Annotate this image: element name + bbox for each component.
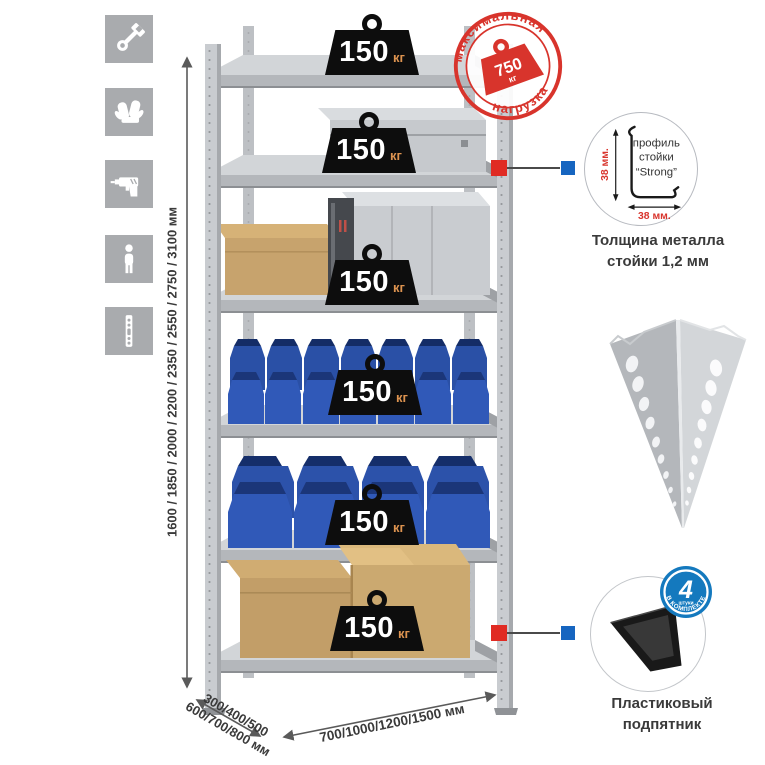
shelf-load-value: 150 xyxy=(344,612,394,645)
profile-detail-circle: 38 мм. 38 мм. профиль стойки “Strong” xyxy=(584,112,698,226)
weight-body: 150 кг xyxy=(322,128,416,173)
wrench-icon xyxy=(105,15,153,63)
shelf-load-badge: 150 кг xyxy=(330,590,424,651)
callout-marker-red-bottom xyxy=(491,625,507,641)
shelf-load-unit: кг xyxy=(393,520,405,535)
shelf-load-badge: 150 кг xyxy=(328,354,422,415)
profile-cross-section: 38 мм. 38 мм. профиль стойки “Strong” xyxy=(585,113,694,222)
max-load-stamp: максимальная нагрузка 750 кг xyxy=(450,8,566,124)
foot-caption-line1: Пластиковый xyxy=(572,694,752,715)
weight-body: 150 кг xyxy=(325,30,419,75)
profile-dim-horizontal: 38 мм. xyxy=(638,211,671,222)
person-icon xyxy=(105,235,153,283)
shelf-load-unit: кг xyxy=(393,50,405,65)
thickness-caption-line1: Толщина металла xyxy=(568,231,748,252)
profile-label-2: стойки xyxy=(639,152,674,164)
gloves-icon xyxy=(105,88,153,136)
profile-label-3: “Strong” xyxy=(636,166,677,178)
product-infographic: 150 кг 150 кг 150 кг 150 кг 150 кг xyxy=(0,0,765,765)
thickness-caption-line2: стойки 1,2 мм xyxy=(568,252,748,273)
callout-marker-red-top xyxy=(491,160,507,176)
shelf-load-value: 150 xyxy=(339,266,389,299)
drill-icon xyxy=(105,160,153,208)
shelf-load-badge: 150 кг xyxy=(325,244,419,305)
shelf-load-unit: кг xyxy=(396,390,408,405)
shelf-load-value: 150 xyxy=(339,36,389,69)
callout-marker-blue-bottom xyxy=(561,626,575,640)
shelf-load-value: 150 xyxy=(336,134,386,167)
foot-caption-line2: подпятник xyxy=(572,715,752,736)
shelf-load-value: 150 xyxy=(339,506,389,539)
callout-marker-blue-top xyxy=(561,161,575,175)
height-dimension-label: 1600 / 1850 / 2000 / 2200 / 2350 / 2550 … xyxy=(165,207,180,537)
profile-label-1: профиль xyxy=(633,138,680,150)
rack-post-icon xyxy=(105,307,153,355)
plastic-foot-caption: Пластиковый подпятник xyxy=(572,694,752,735)
rack-post-glyph xyxy=(109,311,149,351)
metal-thickness-caption: Толщина металла стойки 1,2 мм xyxy=(568,231,748,272)
wrench-glyph xyxy=(109,19,149,59)
weight-body: 150 кг xyxy=(325,500,419,545)
weight-body: 150 кг xyxy=(325,260,419,305)
stamp-graphic: максимальная нагрузка 750 кг xyxy=(450,8,566,124)
shelf-load-badge: 150 кг xyxy=(322,112,416,173)
weight-body: 150 кг xyxy=(330,606,424,651)
kit-quantity-badge: 4 штуки в комплекте xyxy=(656,562,716,622)
angle-post-picture xyxy=(598,306,758,534)
person-glyph xyxy=(109,239,149,279)
weight-body: 150 кг xyxy=(328,370,422,415)
shelf-load-unit: кг xyxy=(393,280,405,295)
shelf-load-badge: 150 кг xyxy=(325,484,419,545)
shelf-load-value: 150 xyxy=(342,376,392,409)
shelf-load-badge: 150 кг xyxy=(325,14,419,75)
shelf-load-unit: кг xyxy=(398,626,410,641)
gloves-glyph xyxy=(109,92,149,132)
drill-glyph xyxy=(109,164,149,204)
shelf-load-unit: кг xyxy=(390,148,402,163)
profile-dim-vertical: 38 мм. xyxy=(600,148,611,181)
cardboard-box-small xyxy=(215,224,337,295)
